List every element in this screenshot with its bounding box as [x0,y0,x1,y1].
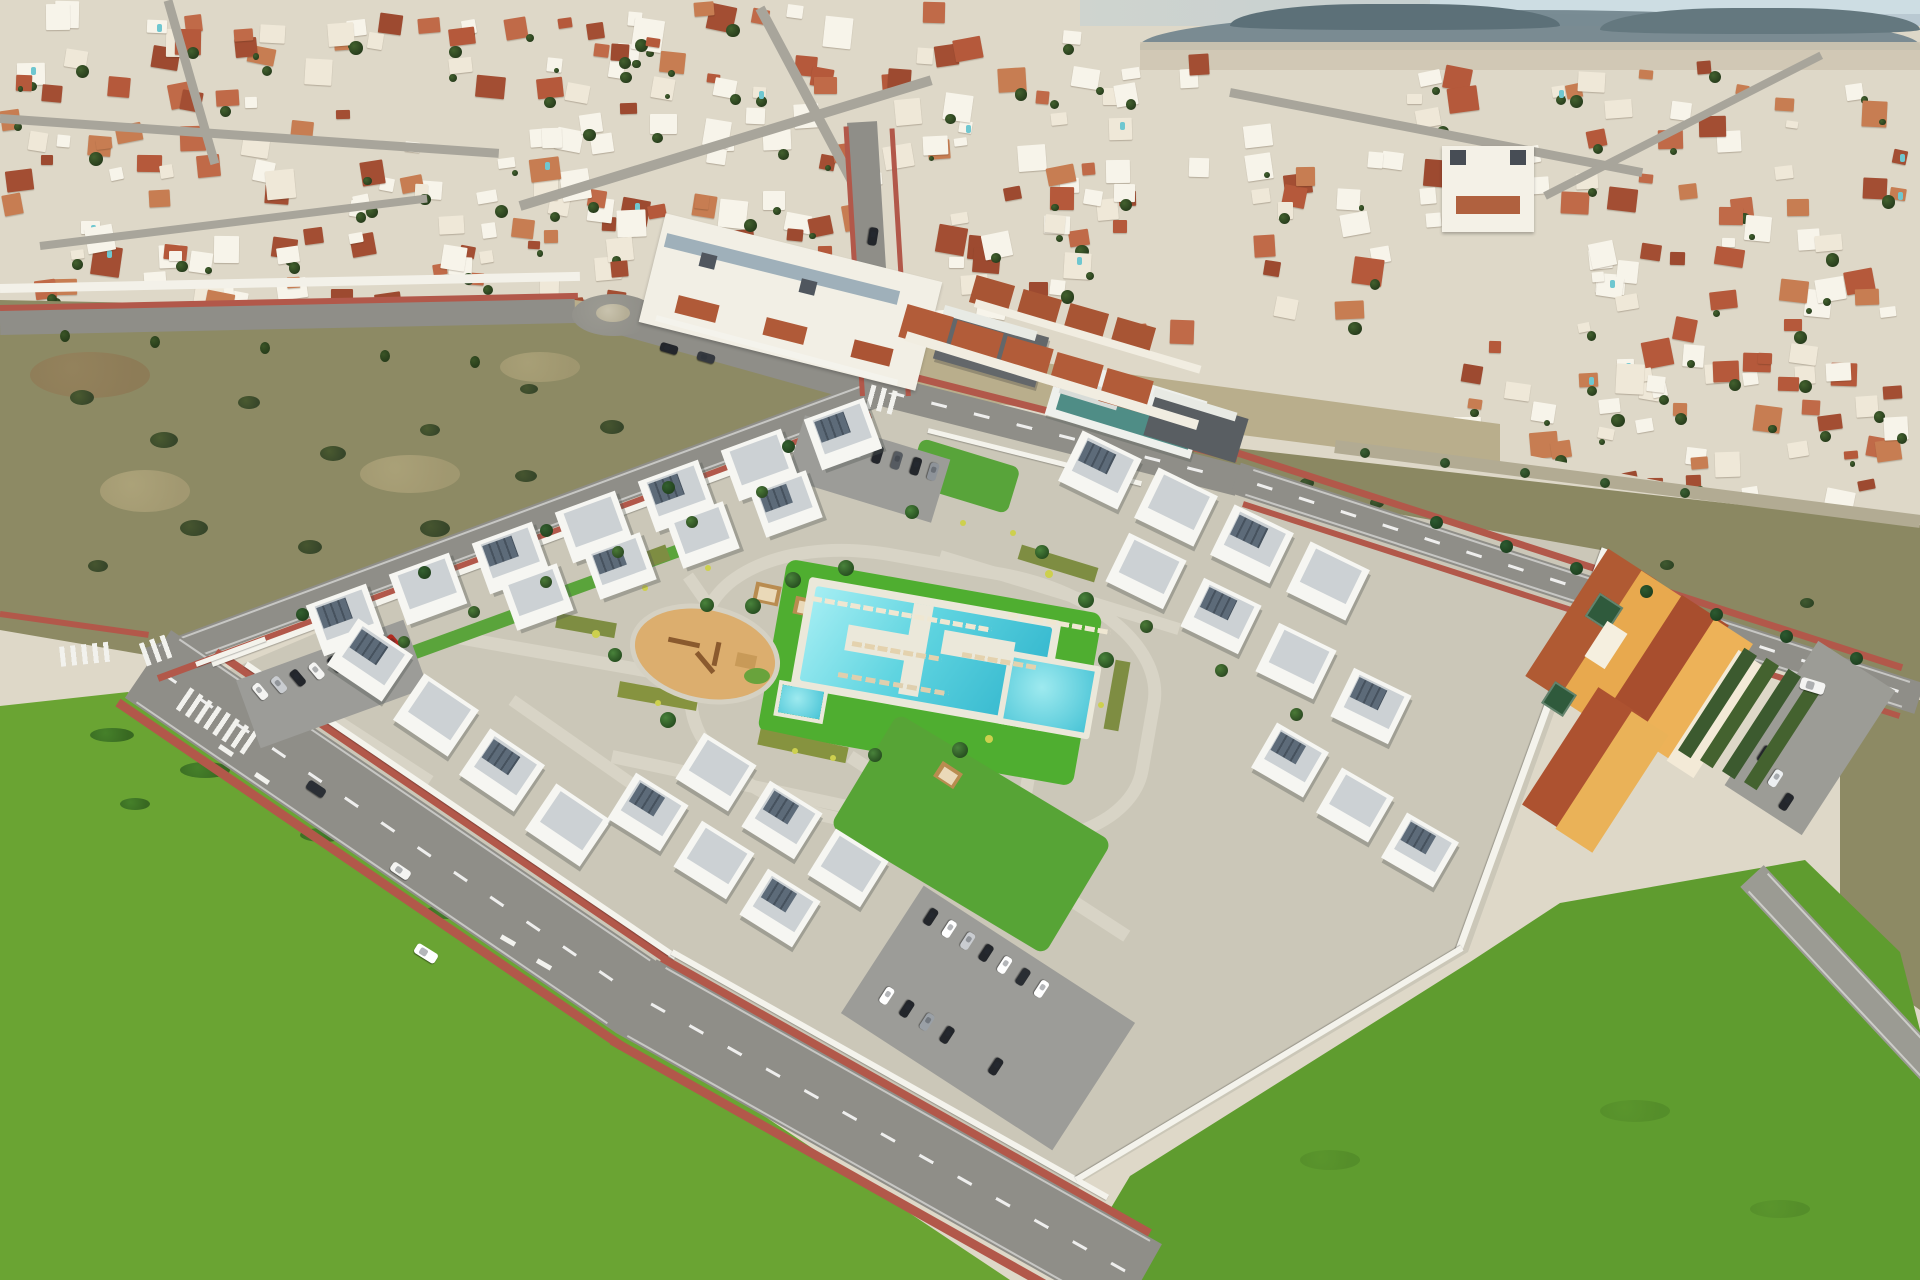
town-tree [778,149,788,159]
town-house [1789,343,1818,365]
grass-shade [1300,1150,1360,1170]
town-house [28,131,49,152]
town-house [1189,158,1209,177]
landmark-tower-roof [1450,150,1466,165]
backyard-pool [1898,192,1903,200]
palm-tree [1780,630,1793,643]
town-house [1044,214,1065,234]
town-house [1814,275,1847,303]
palm-tree [1520,468,1530,478]
town-house [1802,400,1821,416]
backyard-pool [1589,377,1594,385]
town-tree [1806,308,1812,314]
bush [88,560,108,572]
town-house [1017,144,1047,172]
town-tree [744,219,757,232]
landmark-roof [1456,196,1520,214]
town-tree [1799,380,1812,393]
parked-car [307,661,325,681]
town-tree [1882,195,1896,209]
windshield [946,923,954,931]
town-house [1273,296,1298,320]
palm-tree [540,524,553,537]
town-house [1561,191,1590,215]
town-house [348,231,363,243]
play-lawn [744,668,770,684]
palm-tree [700,598,714,612]
windshield [1773,772,1781,780]
town-tree [632,60,641,69]
palm-tree [1035,545,1049,559]
garden-tree [756,486,768,498]
town-house [1669,251,1684,264]
town-house [1787,199,1809,216]
town-house [1879,306,1896,318]
town-house [1251,188,1271,205]
town-tree [1470,409,1478,417]
backyard-pool [31,67,36,75]
town-tree [929,156,934,161]
town-house [822,15,853,48]
town-tree [1879,119,1885,125]
flower-bush [655,700,661,706]
bush [320,446,346,461]
town-house [922,135,948,156]
windshield [924,1016,932,1024]
town-house [586,22,605,41]
town-tree [1348,322,1361,335]
parked-car [1767,768,1784,788]
town-house [1447,85,1480,113]
town-tree [1593,144,1603,154]
town-tree [1051,204,1058,211]
parked-car [270,675,288,695]
dirt-patch [360,455,460,493]
town-house [1051,113,1068,126]
bush [180,520,208,536]
town-tree [1432,87,1440,95]
town-house [107,76,130,98]
town-house [303,227,324,245]
flower-bush [960,520,966,526]
town-house [1607,187,1639,214]
town-tree [1713,310,1720,317]
garden-tree [1140,620,1153,633]
town-house [479,250,493,264]
town-tree [1599,439,1605,445]
town-house [693,1,714,16]
town-house [336,110,350,119]
town-house [159,164,174,179]
town-tree [449,74,457,82]
bush [150,432,178,448]
town-house [1714,451,1740,477]
garden-tree [398,636,410,648]
roundabout-island [596,304,630,322]
windshield [944,1029,952,1037]
town-house [1036,90,1051,105]
town-tree [1063,44,1074,55]
backyard-pool [1120,122,1125,130]
town-tree [1588,188,1597,197]
town-house [923,2,945,23]
backyard-pool [1077,257,1082,265]
town-house [1779,279,1810,304]
town-house [917,47,935,64]
town-house [1599,398,1622,414]
cypress-tree [470,356,480,368]
town-house [814,77,837,94]
town-tree [544,97,556,109]
palm-tree [782,440,795,453]
flower-bush [1045,570,1053,578]
town-tree [1050,100,1059,109]
town-tree [1749,234,1755,240]
town-house [475,74,506,98]
palm-tree [1570,562,1583,575]
town-tree [1544,420,1551,427]
town-house [1775,165,1795,180]
town-house [1719,207,1743,225]
town-house [650,76,676,100]
town-house [649,114,676,134]
windshield [1783,796,1791,804]
town-house [497,157,515,169]
town-house [1639,70,1654,80]
palm-tree [418,566,431,579]
backyard-pool [157,24,162,32]
town-house [647,203,667,219]
palm-tree [296,608,309,621]
town-house [1615,293,1639,311]
town-tree [619,57,631,69]
town-house [1605,99,1633,119]
palm-tree [1680,488,1690,498]
town-house [1640,242,1662,261]
town-house [1784,319,1802,331]
town-tree [620,72,632,84]
bush [520,384,538,394]
town-house [109,167,124,182]
town-house [260,24,285,44]
town-tree [1570,95,1583,108]
flower-bush [830,755,836,761]
parked-car [996,955,1013,975]
town-tree [1670,148,1678,156]
town-tree [1659,395,1669,405]
town-tree [665,94,670,99]
town-house [41,84,62,102]
flower-bush [792,748,798,754]
town-house [543,230,557,243]
flower-bush [985,735,993,743]
town-house [610,260,629,278]
town-tree [356,212,367,223]
town-house [378,13,404,36]
town-house [935,224,968,257]
windshield [928,911,936,919]
town-tree [1279,213,1290,224]
town-house [557,17,573,29]
town-tree [773,207,781,215]
cypress-tree [150,336,160,348]
town-house [1588,240,1618,270]
bush [70,390,94,405]
town-house [503,17,528,42]
town-house [1083,189,1103,207]
town-house [1296,167,1315,186]
palm-tree [1360,448,1370,458]
parked-car [289,668,307,688]
town-house [1113,220,1127,233]
town-tree [809,233,815,239]
town-tree [1729,379,1741,391]
town-tree [652,133,662,143]
parked-car [890,451,904,471]
flower-bush [705,565,711,571]
windshield [894,455,901,463]
town-house [528,241,541,249]
town-tree [495,205,508,218]
windshield [310,783,319,792]
town-tree [512,170,518,176]
town-house [46,4,71,30]
town-house [439,216,465,235]
palm-tree [1098,652,1114,668]
windshield [394,865,403,874]
town-house [367,31,384,49]
town-house [1635,417,1654,433]
town-tree [945,114,955,124]
windshield [311,665,319,673]
town-house [1678,183,1698,200]
backyard-pool [759,91,764,99]
parked-car [941,919,958,939]
town-tree [1820,431,1831,442]
town-house [264,169,296,201]
town-tree [1897,433,1907,443]
town-house [1855,289,1880,306]
windshield [292,672,300,680]
town-house [1742,371,1758,386]
town-house [136,155,162,172]
town-house [1775,97,1795,112]
windshield [913,461,920,469]
town-tree [363,177,371,185]
town-house [1062,30,1081,44]
town-tree [72,259,83,270]
town-house [948,257,963,268]
dirt-patch [500,352,580,382]
windshield [1020,971,1028,979]
palm-tree [1640,585,1653,598]
town-tree [205,267,212,274]
flower-bush [1098,702,1104,708]
town-house [1786,120,1799,129]
olive-tree [1660,560,1674,570]
town-house [1815,234,1843,253]
town-house [1460,364,1482,385]
town-house [528,157,561,183]
town-house [617,209,647,237]
town-house [148,190,170,208]
town-tree [550,212,560,222]
town-house [1696,60,1711,74]
town-house [1070,66,1100,90]
town-house [1367,152,1383,169]
town-house [417,17,441,34]
town-house [440,244,467,271]
town-house [1418,69,1443,87]
palm-tree [1078,592,1094,608]
town-house [1381,151,1404,171]
palm-tree [952,742,968,758]
town-house [448,57,472,75]
town-house [1883,385,1903,399]
town-house [233,28,253,42]
town-house [1778,377,1799,392]
palm-tree [1500,540,1513,553]
windshield [663,344,670,351]
town-house [214,236,239,263]
town-house [953,36,985,63]
palm-tree [1850,652,1863,665]
palm-tree [905,505,919,519]
parked-car [922,907,939,927]
parked-car [1033,979,1050,999]
town-house [953,137,966,146]
windshield [904,1003,912,1011]
town-tree [1061,290,1074,303]
parked-car [1778,792,1795,812]
windshield [965,935,973,943]
garden-tree [540,576,552,588]
garden-tree [1290,708,1303,721]
town-house [1714,246,1746,268]
town-tree [1555,455,1568,468]
town-tree [289,262,300,273]
aerial-view-residential-development [0,0,1920,1280]
parked-car [898,999,915,1019]
cypress-tree [260,342,270,354]
town-house [1825,362,1851,381]
backyard-pool [1900,154,1905,162]
grass-tuft [120,798,150,810]
parked-car [918,1012,935,1032]
parked-car [977,943,994,963]
town-house [1646,375,1666,393]
town-house [951,212,970,226]
town-tree [726,24,740,38]
town-house [694,194,709,210]
palm-tree [868,748,882,762]
town-tree [526,34,534,42]
cypress-tree [380,350,390,362]
town-house [620,102,637,113]
town-tree [1587,386,1597,396]
town-house [1003,185,1022,201]
palm-tree [1430,516,1443,529]
town-house [1,192,24,216]
palm-tree [1600,478,1610,488]
town-house [564,83,590,105]
town-tree [537,250,544,257]
town-tree [349,41,362,54]
town-house [1577,71,1605,92]
town-tree [253,53,260,60]
town-tree [1768,425,1776,433]
landmark-tower-roof [1510,150,1526,165]
windshield [418,947,429,957]
bush [420,520,450,537]
town-tree [1120,199,1132,211]
town-house [542,128,563,148]
town-house [1787,440,1809,458]
town-house [1339,211,1371,238]
parked-car [251,682,269,702]
palm-tree [662,481,675,494]
town-house [1106,160,1130,183]
town-house [5,169,34,193]
town-tree [1086,272,1094,280]
town-tree [1611,414,1625,428]
parked-car [938,1025,955,1045]
town-tree [1370,279,1381,290]
town-house [1262,260,1281,278]
town-house [1691,457,1709,471]
parked-car [926,462,940,482]
town-tree [220,106,232,118]
garden-tree [612,546,624,558]
bush [238,396,260,409]
town-tree [1359,205,1365,211]
bush [298,540,322,554]
flower-bush [1010,530,1016,536]
olive-tree [1800,598,1814,608]
town-house [1335,300,1365,319]
town-house [1253,235,1276,258]
town-tree [554,68,559,73]
town-tree [1015,88,1028,101]
town-tree [449,46,461,58]
bush [600,420,624,434]
backyard-pool [107,250,112,258]
windshield [274,679,282,687]
windshield [870,231,877,238]
town-house [1504,382,1531,403]
town-house [786,3,803,18]
town-tree [730,94,741,105]
windshield [983,947,991,955]
town-house [276,245,300,264]
town-house [1420,188,1438,206]
windshield [1805,680,1815,690]
windshield [884,990,892,998]
town-house [481,222,497,239]
grass-tuft [90,728,134,742]
palm-tree [660,712,676,728]
town-house [1817,413,1843,431]
parked-car [878,986,895,1006]
town-house [304,58,332,85]
dirt-patch [100,470,190,512]
town-tree [1675,413,1687,425]
bush [515,470,537,482]
town-house [1407,94,1422,104]
town-tree [825,165,831,171]
town-house [56,134,70,147]
town-house [787,228,804,242]
